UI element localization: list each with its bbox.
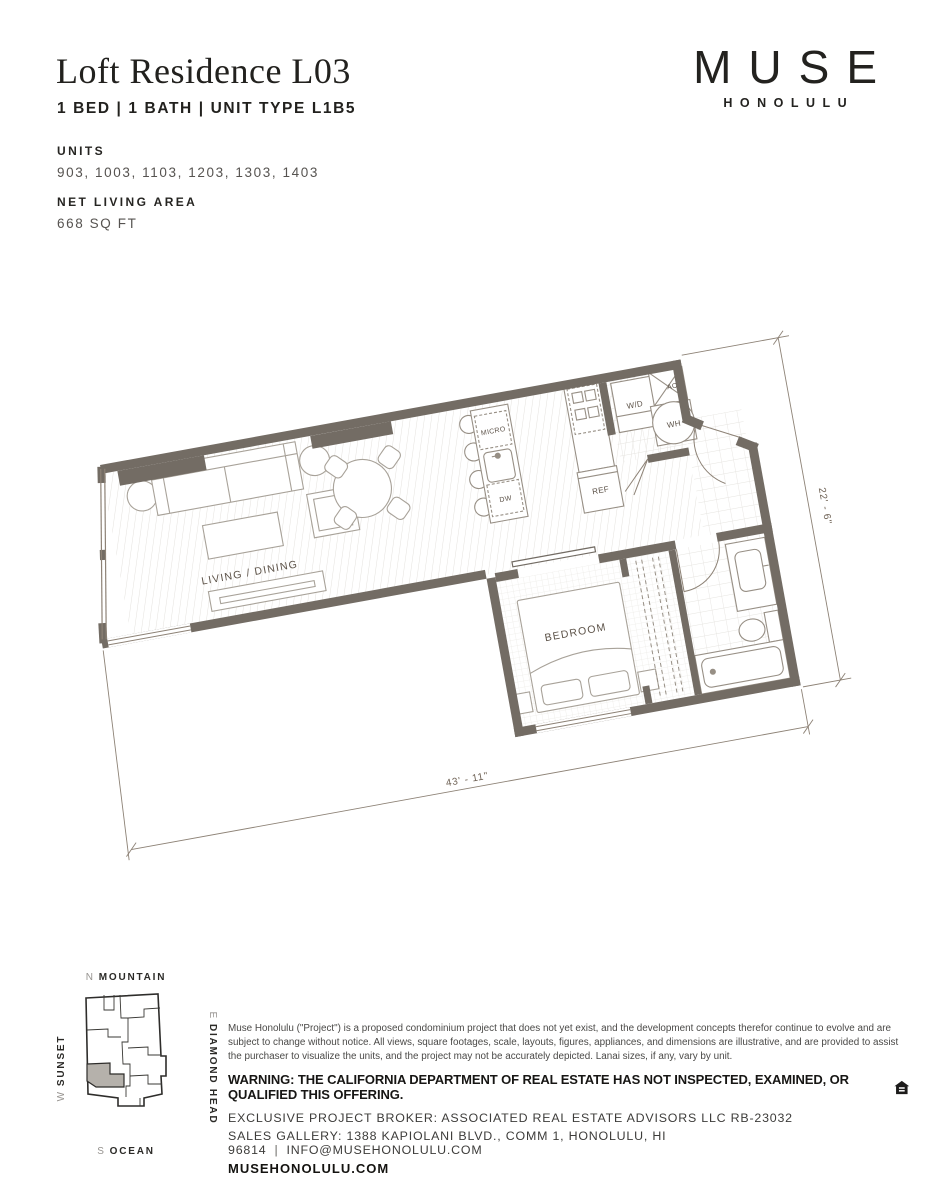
highlighted-unit [87,1063,124,1087]
equal-housing-icon [894,1079,910,1096]
flyer-sheet: Loft Residence L03 1 BED | 1 BATH | UNIT… [0,0,927,1200]
keyplan-south-label: SOCEAN [97,1146,155,1157]
broker-line: EXCLUSIVE PROJECT BROKER: ASSOCIATED REA… [228,1111,910,1125]
warning-line: WARNING: THE CALIFORNIA DEPARTMENT OF RE… [228,1072,910,1102]
unit-partition-lines [87,995,162,1106]
warning-text: WARNING: THE CALIFORNIA DEPARTMENT OF RE… [228,1072,885,1102]
sales-gallery-line: SALES GALLERY: 1388 KAPIOLANI BLVD., COM… [228,1129,910,1157]
website-link[interactable]: MUSEHONOLULU.COM [228,1161,910,1176]
width-dimension: 43' - 11" [445,771,489,790]
separator: | [274,1143,278,1157]
contact-email[interactable]: INFO@MUSEHONOLULU.COM [287,1143,483,1157]
keyplan-west-label: WSUNSET [56,1035,67,1102]
depth-dimension: 22' - 6" [816,487,834,526]
keyplan-north-label: NMOUNTAIN [86,972,167,983]
keyplan-east-label: EDIAMOND HEAD [207,1012,218,1125]
floor-plan: LIVING / DINING BEDROOM MICRO DW REF W/D… [0,0,927,980]
footer: Muse Honolulu ("Project") is a proposed … [228,1022,910,1176]
key-plan: NMOUNTAIN SOCEAN WSUNSET EDIAMOND HEAD [48,958,228,1163]
disclaimer-text: Muse Honolulu ("Project") is a proposed … [228,1022,910,1064]
